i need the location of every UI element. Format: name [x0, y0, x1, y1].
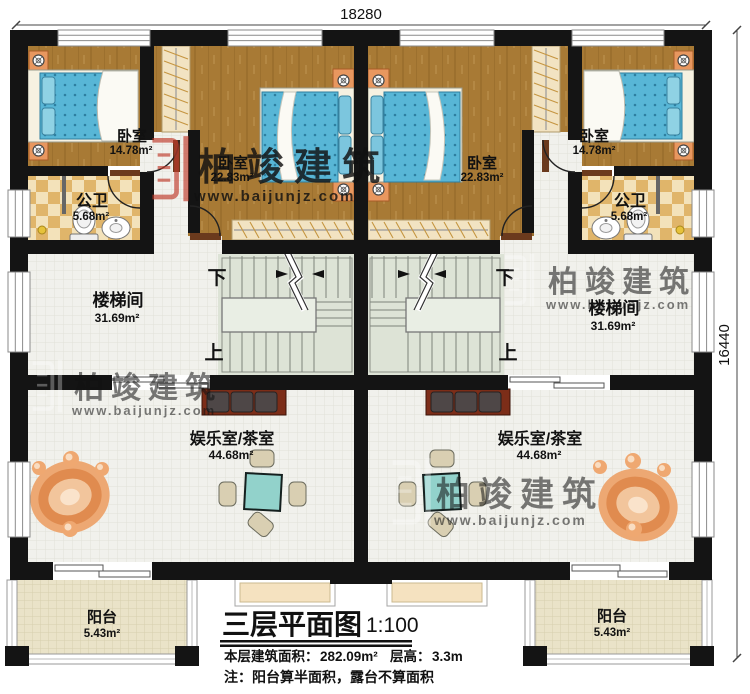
watermark-url: www.baijunjz.com: [71, 403, 216, 418]
room-label-recreation-right: 娱乐室/茶室: [498, 429, 582, 448]
window: [8, 462, 30, 537]
closet-left: [162, 46, 190, 132]
room-area-bathroom-left: 5.68m²: [73, 211, 110, 223]
dimension-right-value: 16440: [716, 324, 733, 366]
sliding-door-balcony-left: [55, 565, 150, 577]
wardrobe-right: [368, 220, 490, 240]
lamp-icon: [678, 145, 689, 156]
room-area-bedroom-small-left: 14.78m²: [110, 145, 153, 157]
pillow: [42, 77, 55, 104]
sliding-door-balcony-right: [572, 565, 667, 577]
floor-height-value: 3.3m: [432, 649, 463, 664]
watermark-brand: 柏竣建筑: [74, 371, 222, 405]
sliding-door-stairhall-right: [510, 377, 604, 388]
watermark-url: www.baijunjz.com: [545, 297, 690, 312]
chair: [399, 482, 416, 506]
party-wall: [354, 30, 368, 580]
window: [58, 30, 150, 46]
canopy-right: [387, 578, 487, 606]
stairs-left: [218, 250, 354, 375]
lamp-icon: [373, 75, 384, 86]
watermark-red: 柏竣建筑 www.baijunjz.com: [152, 136, 390, 205]
title-underline: [220, 645, 412, 648]
chair: [289, 482, 306, 506]
dimension-top: 18280: [12, 6, 710, 29]
watermark-brand: 柏竣建筑: [548, 265, 696, 299]
floor-area-value: 282.09m²: [320, 649, 378, 664]
lamp-icon: [678, 55, 689, 66]
room-label-bathroom-left: 公卫: [76, 192, 108, 210]
railing-post: [5, 646, 29, 666]
lamp-icon: [338, 75, 349, 86]
room-label-balcony-right: 阳台: [597, 607, 627, 625]
wardrobe-left: [232, 220, 354, 240]
railing-post: [175, 646, 199, 666]
room-label-stairwell-left: 楼梯间: [93, 290, 144, 310]
closet-right: [532, 46, 560, 132]
room-label-bedroom-small-right: 卧室: [579, 127, 609, 145]
floor-plan-drawing: 卧室 14.78m² 卧室 14.78m² 卧室 22.83m² 卧室 22.8…: [0, 0, 750, 694]
room-label-bathroom-right: 公卫: [614, 192, 646, 210]
chair: [250, 450, 274, 467]
chair: [430, 450, 454, 467]
room-area-recreation-left: 44.68m²: [209, 448, 254, 462]
railing-post: [523, 646, 547, 666]
room-area-stairwell-left: 31.69m²: [95, 311, 140, 325]
window: [8, 272, 30, 352]
room-area-bedroom-small-right: 14.78m²: [573, 145, 616, 157]
pillow: [667, 77, 680, 104]
room-label-recreation-left: 娱乐室/茶室: [190, 429, 274, 448]
railing-post: [690, 646, 714, 666]
room-area-balcony-left: 5.43m²: [84, 628, 121, 640]
room-label-balcony-left: 阳台: [87, 608, 117, 626]
tv-console-right: [426, 389, 510, 415]
room-area-balcony-right: 5.43m²: [594, 627, 631, 639]
window: [400, 30, 494, 46]
title-block: 三层平面图 1:100 本层建筑面积： 282.09m² 层高： 3.3m 注：…: [220, 609, 463, 685]
floor-drain: [38, 226, 46, 234]
plan-note: 注：阳台算半面积，露台不算面积: [224, 669, 434, 685]
stair-up-label-left: 上: [204, 342, 223, 364]
window: [8, 190, 30, 237]
floor-height-label: 层高：: [390, 648, 431, 664]
canopy-left: [235, 578, 335, 606]
pillow: [667, 108, 680, 135]
plan-title: 三层平面图: [222, 609, 362, 640]
room-area-bathroom-right: 5.68m²: [611, 211, 648, 223]
stairs-right: [368, 250, 504, 375]
room-label-bedroom-large-right: 卧室: [467, 154, 497, 172]
chair: [219, 482, 236, 506]
floor-area-label: 本层建筑面积：: [224, 648, 319, 664]
window: [692, 462, 714, 537]
window: [572, 30, 664, 46]
watermark-brand: 柏竣建筑: [198, 147, 390, 189]
watermark-brand: 柏竣建筑: [436, 475, 604, 514]
dimension-top-value: 18280: [340, 6, 382, 23]
window: [228, 30, 322, 46]
headboard-cushion: [371, 96, 383, 134]
dimension-right: 16440: [716, 26, 741, 662]
tea-table: [244, 473, 282, 511]
stair-up-label-right: 上: [498, 342, 517, 364]
room-area-stairwell-right: 31.69m²: [591, 319, 636, 333]
floor-drain: [676, 226, 684, 234]
pillow: [42, 108, 55, 135]
watermark-url: www.baijunjz.com: [193, 188, 355, 205]
floor-plan-page: 卧室 14.78m² 卧室 14.78m² 卧室 22.83m² 卧室 22.8…: [0, 0, 750, 694]
stair-down-label-left: 下: [207, 268, 226, 289]
lamp-icon: [33, 145, 44, 156]
room-label-bedroom-small-left: 卧室: [117, 127, 147, 145]
watermark-url: www.baijunjz.com: [433, 512, 587, 528]
window: [692, 190, 714, 237]
room-area-recreation-right: 44.68m²: [517, 448, 562, 462]
title-underline: [220, 640, 412, 643]
plan-scale: 1:100: [366, 614, 419, 637]
lamp-icon: [33, 55, 44, 66]
headboard-cushion: [339, 96, 351, 134]
room-area-bedroom-large-right: 22.83m²: [461, 172, 504, 184]
